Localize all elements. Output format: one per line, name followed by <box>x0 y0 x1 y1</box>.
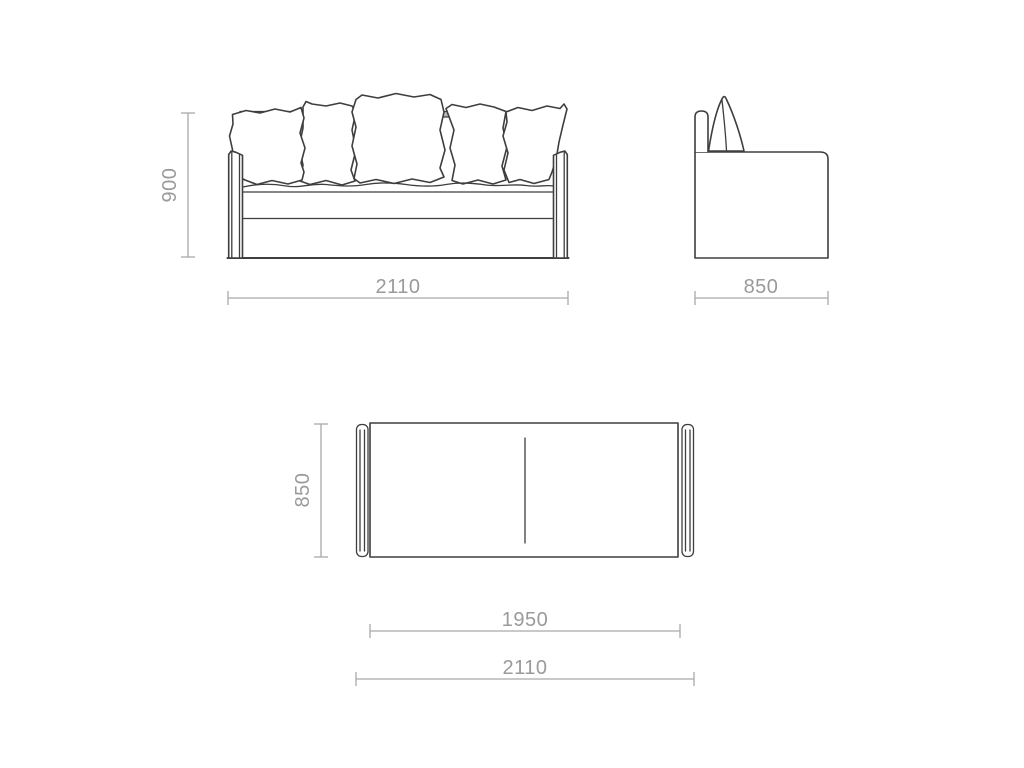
plan-right-armrest-outline <box>682 425 694 557</box>
plan-left-armrest <box>357 425 369 557</box>
plan-view: 850 1950 2110 <box>292 423 694 686</box>
plan-right-armrest <box>682 425 694 557</box>
plan-overall-width-dimension: 2110 <box>356 657 694 686</box>
front-width-label: 2110 <box>375 276 420 298</box>
plan-left-armrest-outline <box>357 425 369 557</box>
plan-overall-width-label: 2110 <box>502 657 547 679</box>
pillow-2 <box>299 102 356 186</box>
left-armrest-outline <box>229 151 243 258</box>
side-backrest-post <box>695 111 708 152</box>
right-armrest-outline <box>554 151 568 258</box>
side-depth-dimension: 850 <box>695 276 828 305</box>
side-view: 850 <box>695 97 828 305</box>
sofa-three-view-drawing: 900 2110 850 <box>0 0 1024 768</box>
pillow-3-center <box>352 94 445 184</box>
front-left-armrest <box>229 151 243 258</box>
plan-inner-width-label: 1950 <box>502 609 549 631</box>
plan-depth-label: 850 <box>292 473 314 508</box>
front-right-armrest <box>554 151 568 258</box>
front-seat-frame <box>228 183 569 258</box>
side-depth-label: 850 <box>744 276 779 298</box>
front-view: 900 2110 <box>159 94 569 306</box>
side-body-outline <box>695 152 828 258</box>
front-height-label: 900 <box>159 168 181 203</box>
plan-inner-width-dimension: 1950 <box>370 609 680 638</box>
plan-depth-dimension: 850 <box>292 424 328 557</box>
sofa-technical-drawing-page: 900 2110 850 <box>0 0 1024 768</box>
plan-seat-outline <box>370 423 678 557</box>
pillow-4 <box>446 104 507 184</box>
front-height-dimension: 900 <box>159 113 195 257</box>
front-width-dimension: 2110 <box>228 276 568 305</box>
side-pillow <box>709 97 745 151</box>
